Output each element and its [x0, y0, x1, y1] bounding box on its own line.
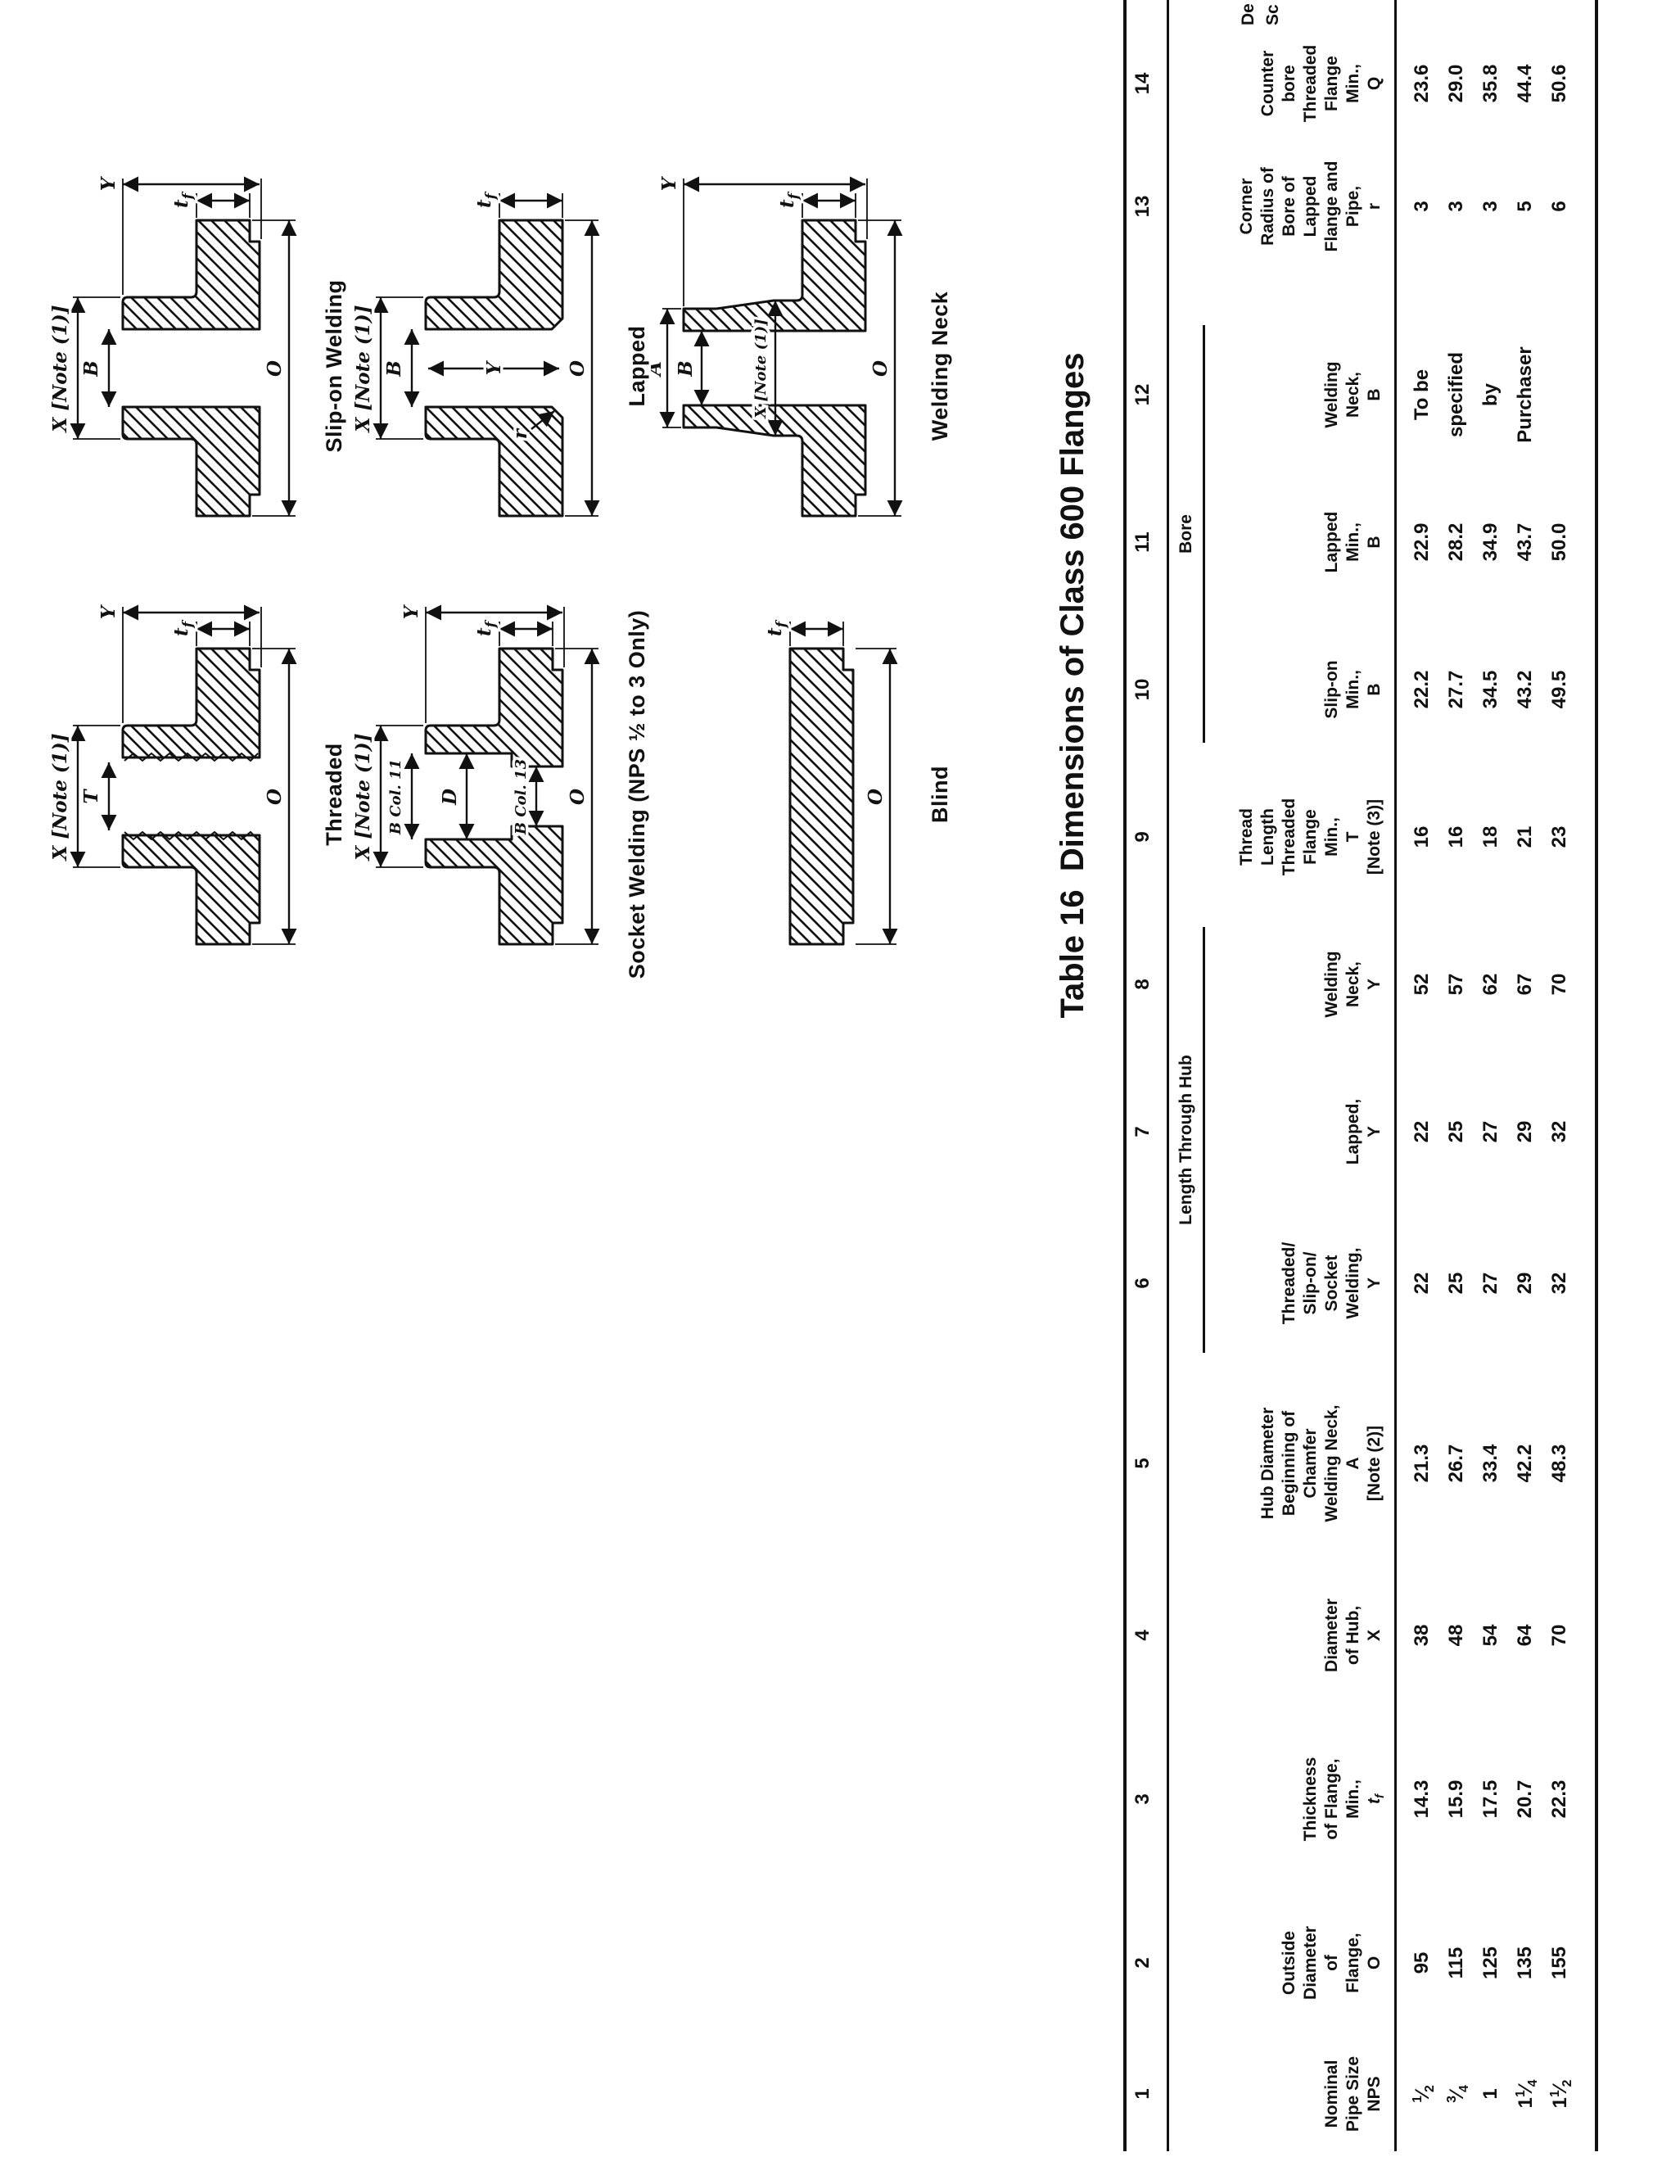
column-header-line: Lapped, — [1343, 1074, 1364, 1189]
nps-value: 3⁄4 — [1445, 2085, 1472, 2103]
column-header-line: O — [1364, 1901, 1385, 2024]
table-cell: 27 — [1479, 1273, 1502, 1295]
table-cell: 67 — [1514, 974, 1537, 996]
table-cell: 26.7 — [1445, 1445, 1468, 1483]
column-header: Lapped,Y — [1343, 1074, 1385, 1189]
dim-label-y: Y — [97, 604, 120, 619]
column-header-line: Thread — [1236, 770, 1258, 905]
column-header-line: Pipe, — [1343, 135, 1364, 278]
column-header-line: Flange and — [1321, 135, 1343, 278]
column-number: 7 — [1131, 1126, 1154, 1137]
table-cell: 28.2 — [1445, 523, 1468, 562]
table-cell: 22.3 — [1548, 1780, 1571, 1819]
dim-label-t: T — [80, 789, 102, 804]
dim-label-tf: tf — [764, 619, 790, 636]
column-header-line: Hub Diameter — [1258, 1380, 1279, 1548]
column-header-line: Y — [1364, 1214, 1385, 1353]
column-header: Thicknessof Flange,Min.,tf — [1300, 1734, 1391, 1865]
column-header-line: T — [1343, 770, 1364, 905]
column-header-line: Welding — [1321, 923, 1343, 1046]
table-cell: To be — [1411, 369, 1434, 420]
table-cell: 95 — [1411, 1952, 1434, 1974]
table-cell: 27 — [1479, 1121, 1502, 1143]
column-header: NominalPipe SizeNPS — [1321, 2033, 1385, 2155]
column-number: 2 — [1131, 1957, 1154, 1968]
table-cell: 34.5 — [1479, 671, 1502, 709]
table-cell: 3 — [1479, 201, 1502, 211]
table-cell: 38 — [1411, 1625, 1434, 1647]
table-cell: 62 — [1479, 974, 1502, 996]
table-cell: 5 — [1514, 201, 1537, 211]
column-header-line: Threaded/ — [1279, 1214, 1300, 1353]
dim-label-tf: tf — [473, 619, 499, 636]
column-header-line: NPS — [1364, 2033, 1385, 2155]
dim-label-o: O — [865, 789, 887, 805]
table-cell: 22.2 — [1411, 671, 1434, 709]
column-header-line: tf — [1364, 1734, 1391, 1865]
dim-label-tf: tf — [170, 619, 196, 636]
table-cell: 14.3 — [1411, 1780, 1434, 1819]
dim-label-y: Y — [483, 359, 505, 375]
column-header-line: Bore of — [1279, 135, 1300, 278]
figure-caption-socket: Socket Welding (NPS ½ to 3 Only) — [625, 610, 650, 979]
dim-label-r: r — [509, 427, 531, 439]
table-cell: by — [1479, 383, 1502, 406]
group-header-rule — [1203, 927, 1205, 1353]
table-cell: 20.7 — [1514, 1780, 1537, 1819]
column-header: LappedMin.,B — [1321, 485, 1385, 599]
column-number: 14 — [1131, 73, 1154, 95]
column-header-line: Min., — [1343, 1734, 1364, 1865]
figure-slip_on: X [Note (1)]BOtfY — [45, 174, 323, 558]
column-header-line: Welding — [1321, 323, 1343, 467]
column-header-line: Lapped — [1321, 485, 1343, 599]
figure-welding_neck-drawing: ABX [Note (1)]OtfY — [651, 174, 929, 558]
table-cell: 23.6 — [1411, 65, 1434, 103]
table-cell: 35.8 — [1479, 65, 1502, 103]
column-header-line: of Flange, — [1321, 1734, 1343, 1865]
column-header-line: r — [1364, 135, 1385, 278]
dim-label-tf: tf — [473, 191, 499, 208]
column-header-line: Flange — [1300, 770, 1321, 905]
table-cell: 48 — [1445, 1625, 1468, 1647]
table-cell: 50.0 — [1548, 523, 1571, 562]
column-header: WeldingNeck,B — [1321, 323, 1385, 467]
table-inner-rule — [1167, 0, 1169, 2151]
table-cell: 48.3 — [1548, 1445, 1571, 1483]
figure-caption-threaded: Threaded — [322, 743, 347, 846]
column-header-line: X — [1364, 1574, 1385, 1697]
table-cell: 52 — [1411, 974, 1434, 996]
table-cell: 57 — [1445, 974, 1468, 996]
figure-lapped: X [Note (1)]BYrOtf — [348, 174, 626, 558]
column-number: 8 — [1131, 979, 1154, 989]
dim-label-o: O — [567, 789, 589, 805]
column-header: WeldingNeck,Y — [1321, 923, 1385, 1046]
column-header: ThreadLengthThreadedFlangeMin.,T[Note (3… — [1236, 770, 1385, 905]
table-cell: 6 — [1548, 201, 1571, 211]
table-cell: specified — [1445, 352, 1468, 437]
column-number: 13 — [1131, 196, 1154, 218]
column-header: Hub DiameterBeginning ofChamferWelding N… — [1258, 1380, 1385, 1548]
table-cell: 32 — [1548, 1121, 1571, 1143]
group-header-bore: Bore — [1176, 514, 1196, 554]
dim-label-y: Y — [658, 175, 680, 191]
table-cell: 29 — [1514, 1121, 1537, 1143]
nps-value: 1 — [1479, 2088, 1502, 2099]
column-number: 10 — [1131, 679, 1154, 701]
table-cell: 25 — [1445, 1121, 1468, 1143]
table-cell: 155 — [1548, 1947, 1571, 1979]
flange-section — [123, 835, 260, 944]
figure-threaded-drawing: X [Note (1)]TOtfY — [45, 602, 323, 987]
column-header-line: Min., — [1321, 770, 1343, 905]
column-number: 11 — [1131, 531, 1154, 552]
figure-lapped-drawing: X [Note (1)]BYrOtf — [348, 174, 626, 558]
column-header-line: Diameter — [1321, 1574, 1343, 1697]
column-header-line: Socket — [1321, 1214, 1343, 1353]
column-header-line: of Hub, — [1343, 1574, 1364, 1697]
column-header-line: Counter — [1258, 20, 1279, 147]
table-cell: 3 — [1445, 201, 1468, 211]
column-header-line: Y — [1364, 1074, 1385, 1189]
table-cell: 18 — [1479, 826, 1502, 848]
column-header-line: Min., — [1343, 485, 1364, 599]
page-title: Table 16 Dimensions of Class 600 Flanges — [1055, 353, 1091, 1019]
table-cell: 25 — [1445, 1273, 1468, 1295]
dim-label-x: X [Note (1)] — [49, 305, 71, 433]
column-header: CounterboreThreadedFlangeMin.,Q — [1258, 20, 1385, 147]
dim-label-b: B — [675, 360, 697, 377]
figure-caption-welding_neck: Welding Neck — [928, 292, 953, 441]
flange-section — [790, 649, 853, 944]
column-header-line: Y — [1364, 923, 1385, 1046]
column-header-line: Length — [1258, 770, 1279, 905]
figure-caption-slip_on: Slip-on Welding — [322, 280, 347, 453]
column-number: 1 — [1131, 2088, 1154, 2099]
scanned-page: { "page": { "title": "Table 16 Dimension… — [0, 0, 1680, 2184]
table-cell: 3 — [1411, 201, 1434, 211]
table-cell: Purchaser — [1514, 346, 1537, 442]
column-header: CornerRadius ofBore ofLappedFlange andPi… — [1236, 135, 1385, 278]
column-header-line: Lapped — [1300, 135, 1321, 278]
flange-section — [426, 220, 562, 329]
dim-label-x: X [Note (1)] — [352, 733, 374, 861]
column-header-line: Threaded — [1279, 770, 1300, 905]
table-cell: 22.9 — [1411, 523, 1434, 562]
column-header-line: Neck, — [1343, 923, 1364, 1046]
column-header-line: Slip-on/ — [1300, 1214, 1321, 1353]
dim-label-x: X [Note (1)] — [352, 305, 374, 433]
column-header-line: Q — [1364, 20, 1385, 147]
dim-label-tf: tf — [776, 191, 802, 208]
table-cell: 16 — [1411, 826, 1434, 848]
figure-caption-lapped: Lapped — [625, 325, 650, 406]
dim-label-o: O — [869, 360, 892, 377]
column-header-line: [Note (3)] — [1364, 770, 1385, 905]
table-cell: 22 — [1411, 1121, 1434, 1143]
dim-label-b: B — [383, 360, 405, 377]
table-cell: 115 — [1445, 1947, 1468, 1979]
column-header: Threaded/Slip-on/SocketWelding,Y — [1279, 1214, 1385, 1353]
table-cell: 70 — [1548, 974, 1571, 996]
column-header-line: Threaded — [1300, 20, 1321, 147]
table-cell: 64 — [1514, 1625, 1537, 1647]
column-header: Diameterof Hub,X — [1321, 1574, 1385, 1697]
table-cell: 44.4 — [1514, 65, 1537, 103]
column-header-line: [Note (2)] — [1364, 1380, 1385, 1548]
table-cell: 43.2 — [1514, 671, 1537, 709]
table-cell: 54 — [1479, 1625, 1502, 1647]
table-cell: 70 — [1548, 1625, 1571, 1647]
table-cell: 27.7 — [1445, 671, 1468, 709]
dim-label-x: X [Note (1)] — [752, 319, 770, 418]
column-number: 12 — [1131, 384, 1154, 406]
table-cell: 15.9 — [1445, 1780, 1468, 1819]
figure-caption-blind: Blind — [928, 766, 953, 823]
column-number: 5 — [1131, 1458, 1154, 1468]
column-header-line: A — [1343, 1380, 1364, 1548]
nps-value: 1⁄2 — [1411, 2085, 1438, 2103]
column-number: 9 — [1131, 831, 1154, 842]
table-cell: 50.6 — [1548, 65, 1571, 103]
rotated-page-canvas: X [Note (1)]TOtfYThreaded X [Note (1)]BO… — [0, 0, 1680, 2184]
column-header-line: Flange — [1321, 20, 1343, 147]
column-header-line: Slip-on — [1321, 632, 1343, 747]
table-cell: 16 — [1445, 826, 1468, 848]
table-cell: 32 — [1548, 1273, 1571, 1295]
col15-fragment: Sc — [1261, 4, 1285, 25]
column-header: Slip-onMin.,B — [1321, 632, 1385, 747]
column-header-line: B — [1364, 485, 1385, 599]
table-cell: 135 — [1514, 1947, 1537, 1979]
column-header-line: Nominal — [1321, 2033, 1343, 2155]
table-bottom-rule — [1595, 0, 1598, 2151]
table-cell: 29 — [1514, 1273, 1537, 1295]
figure-socket: X [Note (1)]B Col. 11DB Col. 13OtfY — [348, 602, 626, 987]
table-cell: 33.4 — [1479, 1445, 1502, 1483]
table-cell: 42.2 — [1514, 1445, 1537, 1483]
column-header-line: Corner — [1236, 135, 1258, 278]
dim-label-b: B — [80, 360, 102, 377]
column-header-line: Pipe Size — [1343, 2033, 1364, 2155]
column-header-line: Chamfer — [1300, 1380, 1321, 1548]
table-cell: 43.7 — [1514, 523, 1537, 562]
dim-label-o: O — [264, 360, 286, 377]
column-header-line: of — [1321, 1901, 1343, 2024]
column-header: OutsideDiameterofFlange,O — [1279, 1901, 1385, 2024]
nps-value: 11⁄4 — [1514, 2080, 1541, 2109]
column-header-line: bore — [1279, 20, 1300, 147]
column-number: 4 — [1131, 1630, 1154, 1640]
dim-label-tf: tf — [170, 191, 196, 208]
column-header-line: Min., — [1343, 632, 1364, 747]
figure-socket-drawing: X [Note (1)]B Col. 11DB Col. 13OtfY — [348, 602, 626, 987]
flange-section — [426, 407, 562, 516]
column-header-line: Thickness — [1300, 1734, 1321, 1865]
column-number: 3 — [1131, 1793, 1154, 1804]
column-header-line: Flange, — [1343, 1901, 1364, 2024]
dim-label-b-col11: B Col. 11 — [387, 759, 404, 835]
flange-section — [426, 649, 562, 766]
table-cell: 29.0 — [1445, 65, 1468, 103]
col15-fragment: De — [1236, 3, 1261, 25]
column-header-line: Radius of — [1258, 135, 1279, 278]
column-number: 6 — [1131, 1277, 1154, 1288]
flange-section — [123, 649, 260, 757]
table-cell: 23 — [1548, 826, 1571, 848]
dim-label-o: O — [567, 360, 589, 377]
column-header-line: Neck, — [1343, 323, 1364, 467]
table-header-rule — [1394, 0, 1397, 2151]
table-top-rule — [1123, 0, 1127, 2151]
dim-label-b-col13: B Col. 13 — [513, 759, 530, 835]
table-cell: 49.5 — [1548, 671, 1571, 709]
table-cell: 21.3 — [1411, 1445, 1434, 1483]
nps-value: 11⁄2 — [1548, 2080, 1575, 2109]
column-header-line: Beginning of — [1279, 1380, 1300, 1548]
table-cell: 125 — [1479, 1947, 1502, 1979]
dim-label-x: X [Note (1)] — [49, 733, 71, 861]
group-header-hub: Length Through Hub — [1176, 1055, 1196, 1225]
table-cell: 21 — [1514, 826, 1537, 848]
table-cell: 22 — [1411, 1273, 1434, 1295]
figure-slip_on-drawing: X [Note (1)]BOtfY — [45, 174, 323, 558]
figure-threaded: X [Note (1)]TOtfY — [45, 602, 323, 987]
table-cell: 34.9 — [1479, 523, 1502, 562]
flange-section — [426, 826, 562, 944]
group-header-rule — [1203, 325, 1205, 743]
dim-label-o: O — [264, 789, 286, 805]
table-cell: 17.5 — [1479, 1780, 1502, 1819]
dim-label-a: A — [651, 361, 666, 378]
column-header-line: Welding, — [1343, 1214, 1364, 1353]
figure-blind: tfO — [651, 602, 929, 987]
dim-label-d: D — [439, 789, 461, 806]
dim-label-y: Y — [97, 175, 120, 191]
column-header-line: Welding Neck, — [1321, 1380, 1343, 1548]
dim-label-y: Y — [400, 604, 422, 619]
flange-section — [123, 220, 260, 329]
flange-section — [123, 407, 260, 516]
column-header-line: Diameter — [1300, 1901, 1321, 2024]
column-header-line: Min., — [1343, 20, 1364, 147]
figure-welding_neck: ABX [Note (1)]OtfY — [651, 174, 929, 558]
column-header-line: B — [1364, 632, 1385, 747]
column-header-line: Outside — [1279, 1901, 1300, 2024]
figure-blind-drawing: tfO — [651, 602, 929, 987]
column-header-line: B — [1364, 323, 1385, 467]
